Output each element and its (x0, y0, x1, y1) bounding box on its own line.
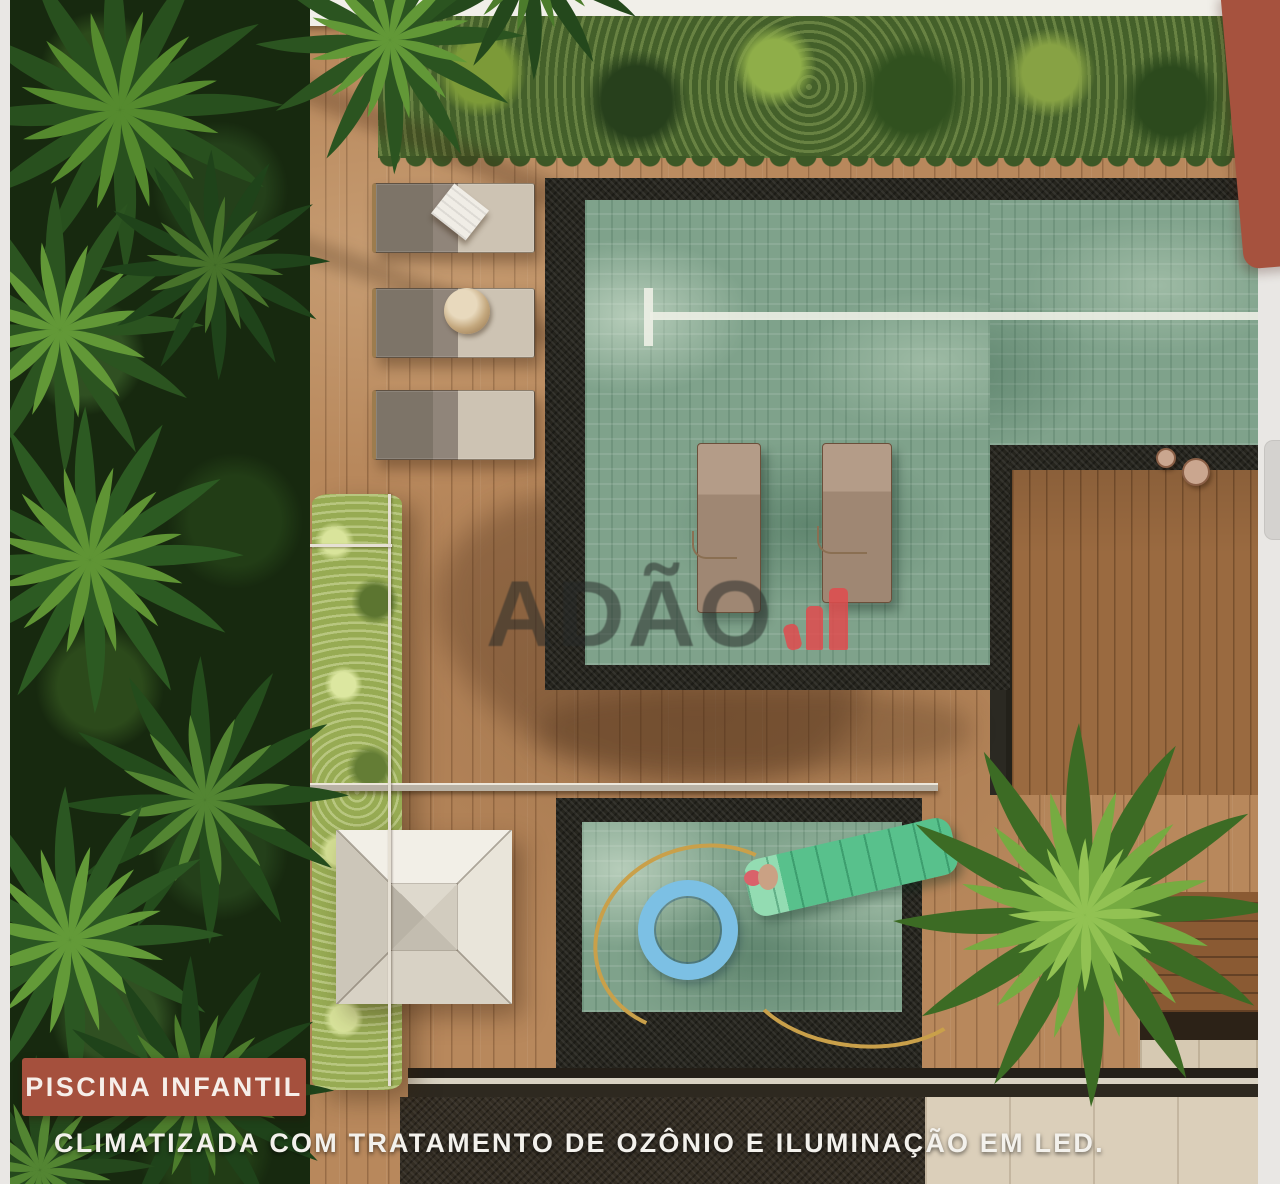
lap-lane-line-end (644, 288, 653, 346)
round-tray (444, 288, 490, 334)
pool-name-badge: PISCINA INFANTIL (22, 1058, 306, 1116)
glass-rail (308, 785, 938, 791)
child-figure (744, 864, 778, 892)
pool-name-badge-label: PISCINA INFANTIL (25, 1072, 303, 1103)
garden-underbrush (10, 0, 310, 1184)
wood-bench (1146, 892, 1258, 1012)
deck-step-edge (408, 1068, 1258, 1078)
in-pool-lounger (822, 443, 892, 603)
lap-lane-line (650, 312, 1258, 320)
bar-chart-logo-icon (785, 588, 848, 650)
shower-head (1182, 458, 1210, 486)
white-canopy (336, 830, 512, 1004)
wood-deck-right-platform (1012, 452, 1258, 795)
swim-ring (638, 880, 738, 980)
pool-aerial-render: ADÃO PISCINA INFANTIL CLIMATIZADA COM TR… (0, 0, 1280, 1184)
deck-step-shadow (408, 1084, 1258, 1098)
watermark: ADÃO (486, 548, 826, 658)
deck-shadow (540, 690, 970, 770)
background-card-edge (1264, 440, 1280, 540)
watermark-text: ADÃO (486, 569, 775, 658)
bench-shadow (1140, 1012, 1258, 1040)
hedge-top-border (378, 16, 1240, 158)
feature-caption: CLIMATIZADA COM TRATAMENTO DE OZÔNIO E I… (54, 1128, 954, 1159)
frame-left-margin (0, 0, 10, 1184)
sun-lounger (372, 390, 535, 460)
shower-head (1156, 448, 1176, 468)
fence-line (388, 494, 391, 1086)
